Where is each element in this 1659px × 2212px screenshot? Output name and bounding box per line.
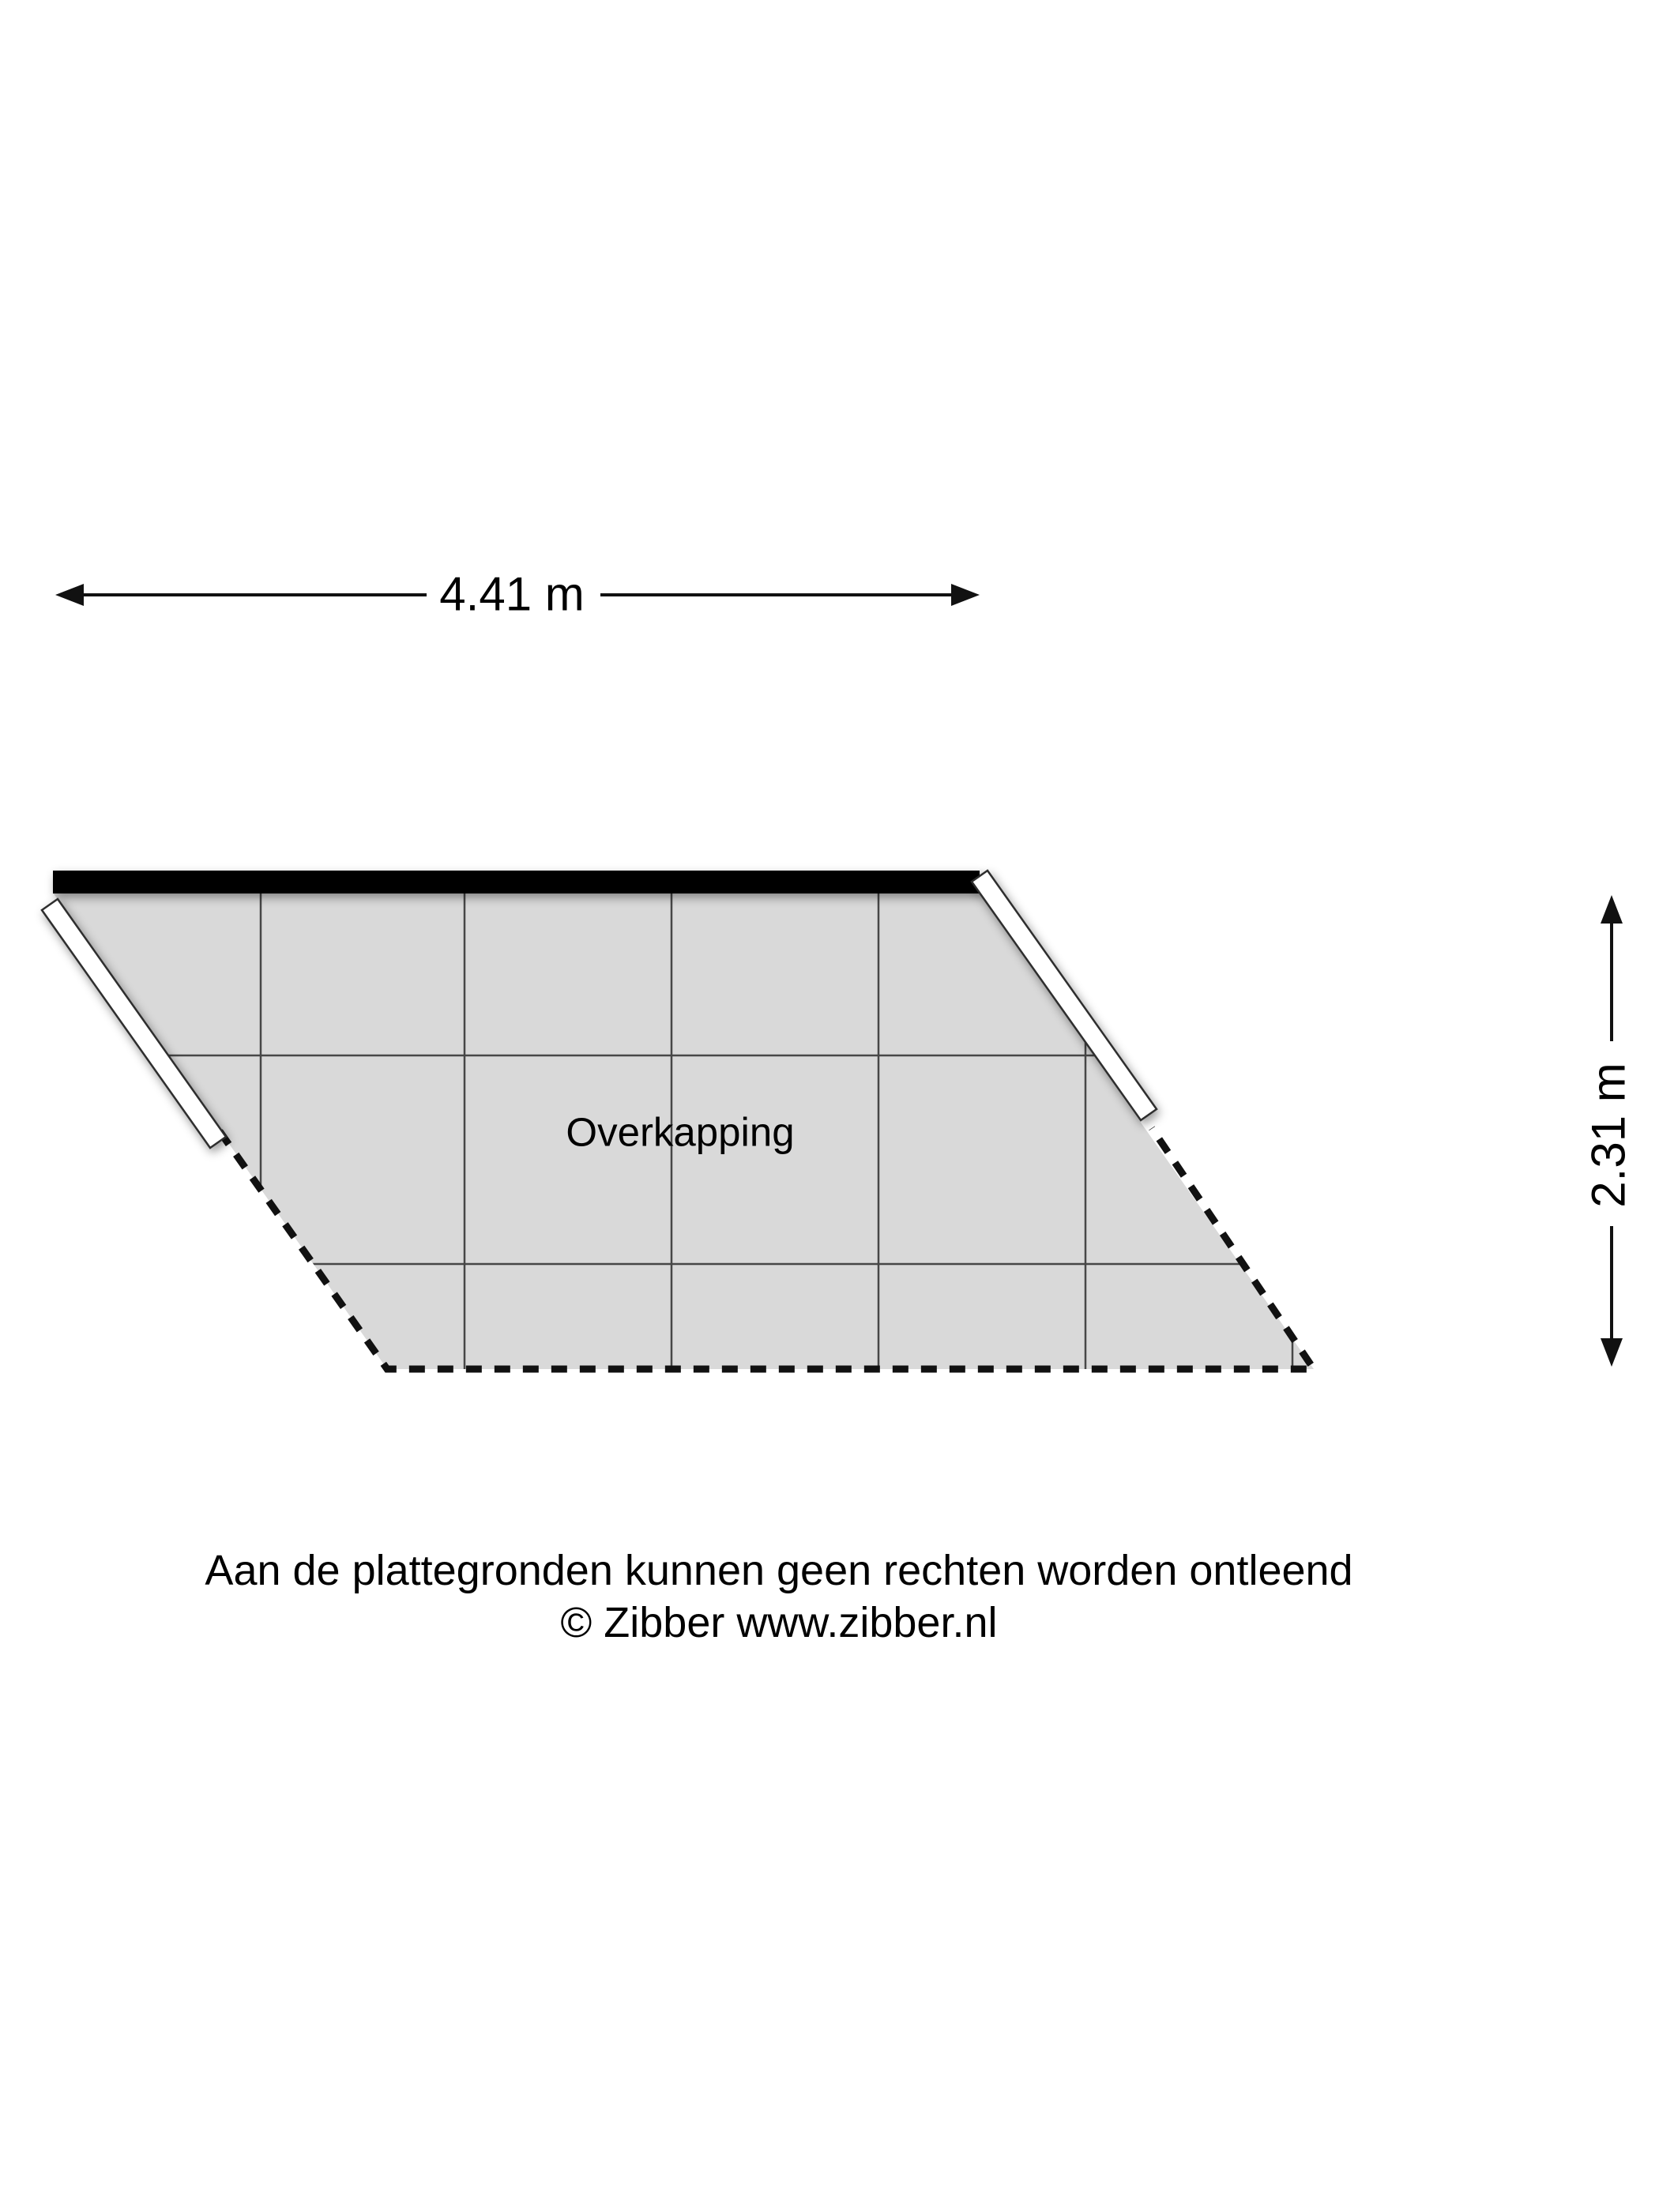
arrowhead-right-icon [951,584,980,606]
width-dimension-label: 4.41 m [439,567,584,622]
footer-disclaimer: Aan de plattegronden kunnen geen rechten… [205,1544,1352,1597]
footer: Aan de plattegronden kunnen geen rechten… [205,1544,1352,1649]
footer-copyright: © Zibber www.zibber.nl [205,1597,1352,1649]
floorplan-canvas [0,0,1659,2212]
arrowhead-left-icon [55,584,84,606]
room-label: Overkapping [566,1109,794,1156]
floorplan-page: 4.41 m 2.31 m Overkapping Aan de platteg… [0,0,1659,2212]
arrowhead-up-icon [1601,895,1623,924]
top-wall [53,871,980,893]
arrowhead-down-icon [1601,1338,1623,1367]
height-dimension-label: 2.31 m [1582,1063,1636,1207]
